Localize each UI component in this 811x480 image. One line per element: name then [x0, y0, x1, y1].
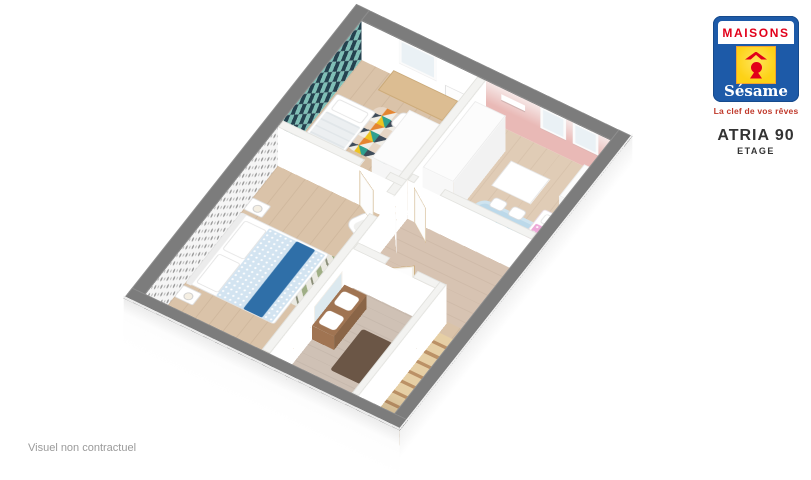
lamp [182, 291, 196, 302]
logo-sesame-text: Sésame [713, 82, 799, 100]
level-label: ETAGE [706, 146, 806, 156]
logo-top-band: MAISONS [718, 21, 794, 44]
floorplan-3d [124, 43, 633, 469]
roof-icon [745, 52, 767, 60]
wall-shelf [501, 94, 525, 111]
lamp [251, 203, 265, 214]
logo-tagline: La clef de vos rêves [706, 106, 806, 116]
floorplan-visual-page: MAISONS Sésame La clef de vos rêves ATRI… [0, 0, 811, 480]
logo-yellow-square [736, 46, 776, 84]
model-name: ATRIA 90 [706, 127, 806, 145]
logo-maisons-text: MAISONS [722, 26, 789, 40]
maisons-sesame-logo: MAISONS Sésame [713, 16, 799, 102]
disclaimer-text: Visuel non contractuel [28, 442, 136, 454]
brand-block: MAISONS Sésame La clef de vos rêves ATRI… [706, 16, 806, 156]
